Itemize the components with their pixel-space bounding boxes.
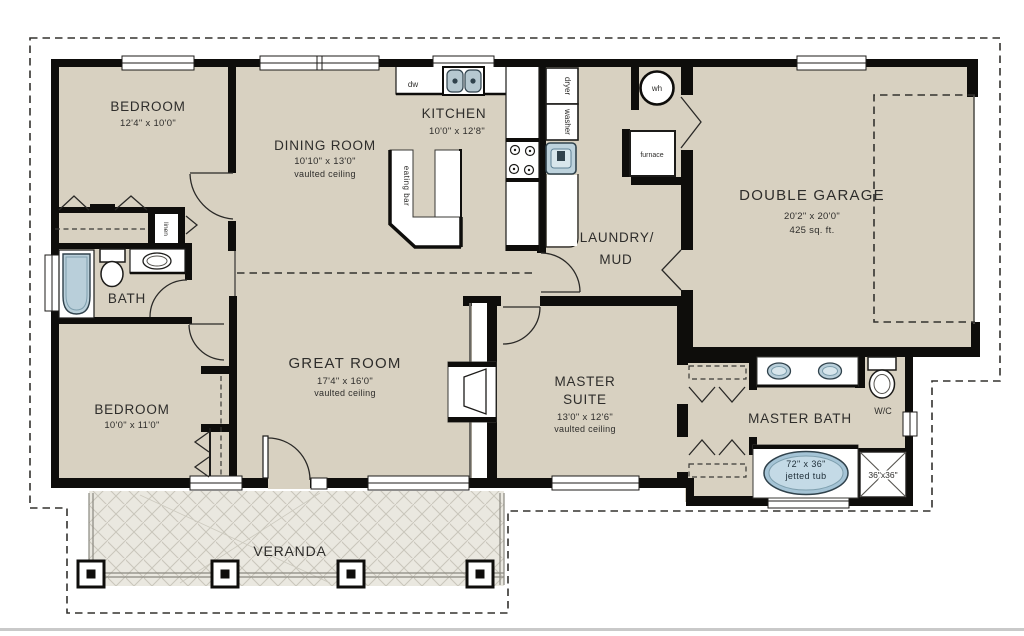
svg-text:SUITE: SUITE — [563, 392, 607, 407]
svg-text:10'0" x 11'0": 10'0" x 11'0" — [104, 420, 159, 431]
svg-text:MASTER BATH: MASTER BATH — [748, 411, 852, 426]
svg-text:vaulted ceiling: vaulted ceiling — [314, 388, 376, 398]
svg-text:wh: wh — [651, 84, 662, 93]
svg-text:MASTER: MASTER — [554, 374, 615, 389]
svg-text:MUD: MUD — [599, 252, 632, 267]
svg-text:jetted tub: jetted tub — [784, 471, 826, 481]
svg-text:13'0" x 12'6": 13'0" x 12'6" — [557, 412, 613, 423]
svg-text:KITCHEN: KITCHEN — [422, 106, 487, 121]
svg-text:VERANDA: VERANDA — [253, 543, 326, 559]
svg-text:425 sq. ft.: 425 sq. ft. — [789, 225, 834, 236]
svg-text:DOUBLE GARAGE: DOUBLE GARAGE — [739, 187, 885, 204]
svg-text:eating bar: eating bar — [402, 166, 411, 207]
svg-text:10'0" x 12'8": 10'0" x 12'8" — [429, 126, 485, 137]
svg-text:LAUNDRY/: LAUNDRY/ — [580, 230, 654, 245]
svg-text:10'10" x 13'0": 10'10" x 13'0" — [294, 156, 356, 167]
svg-text:BATH: BATH — [108, 291, 146, 306]
svg-text:W/C: W/C — [874, 406, 892, 416]
svg-text:GREAT ROOM: GREAT ROOM — [288, 355, 401, 372]
svg-text:17'4" x 16'0": 17'4" x 16'0" — [317, 376, 373, 387]
svg-text:20'2" x 20'0": 20'2" x 20'0" — [784, 211, 840, 222]
svg-text:BEDROOM: BEDROOM — [94, 402, 169, 417]
svg-text:vaulted ceiling: vaulted ceiling — [294, 169, 356, 179]
svg-text:DINING ROOM: DINING ROOM — [274, 138, 376, 153]
svg-text:BEDROOM: BEDROOM — [110, 99, 185, 114]
svg-text:dw: dw — [408, 80, 418, 89]
svg-text:washer: washer — [563, 108, 572, 135]
svg-text:furnace: furnace — [640, 152, 663, 159]
svg-text:linen: linen — [162, 222, 169, 236]
svg-text:vaulted ceiling: vaulted ceiling — [554, 424, 616, 434]
svg-text:12'4" x 10'0": 12'4" x 10'0" — [120, 118, 176, 129]
svg-text:36"x36": 36"x36" — [868, 470, 897, 480]
svg-text:72" x 36": 72" x 36" — [786, 459, 826, 469]
svg-text:dryer: dryer — [563, 77, 572, 96]
